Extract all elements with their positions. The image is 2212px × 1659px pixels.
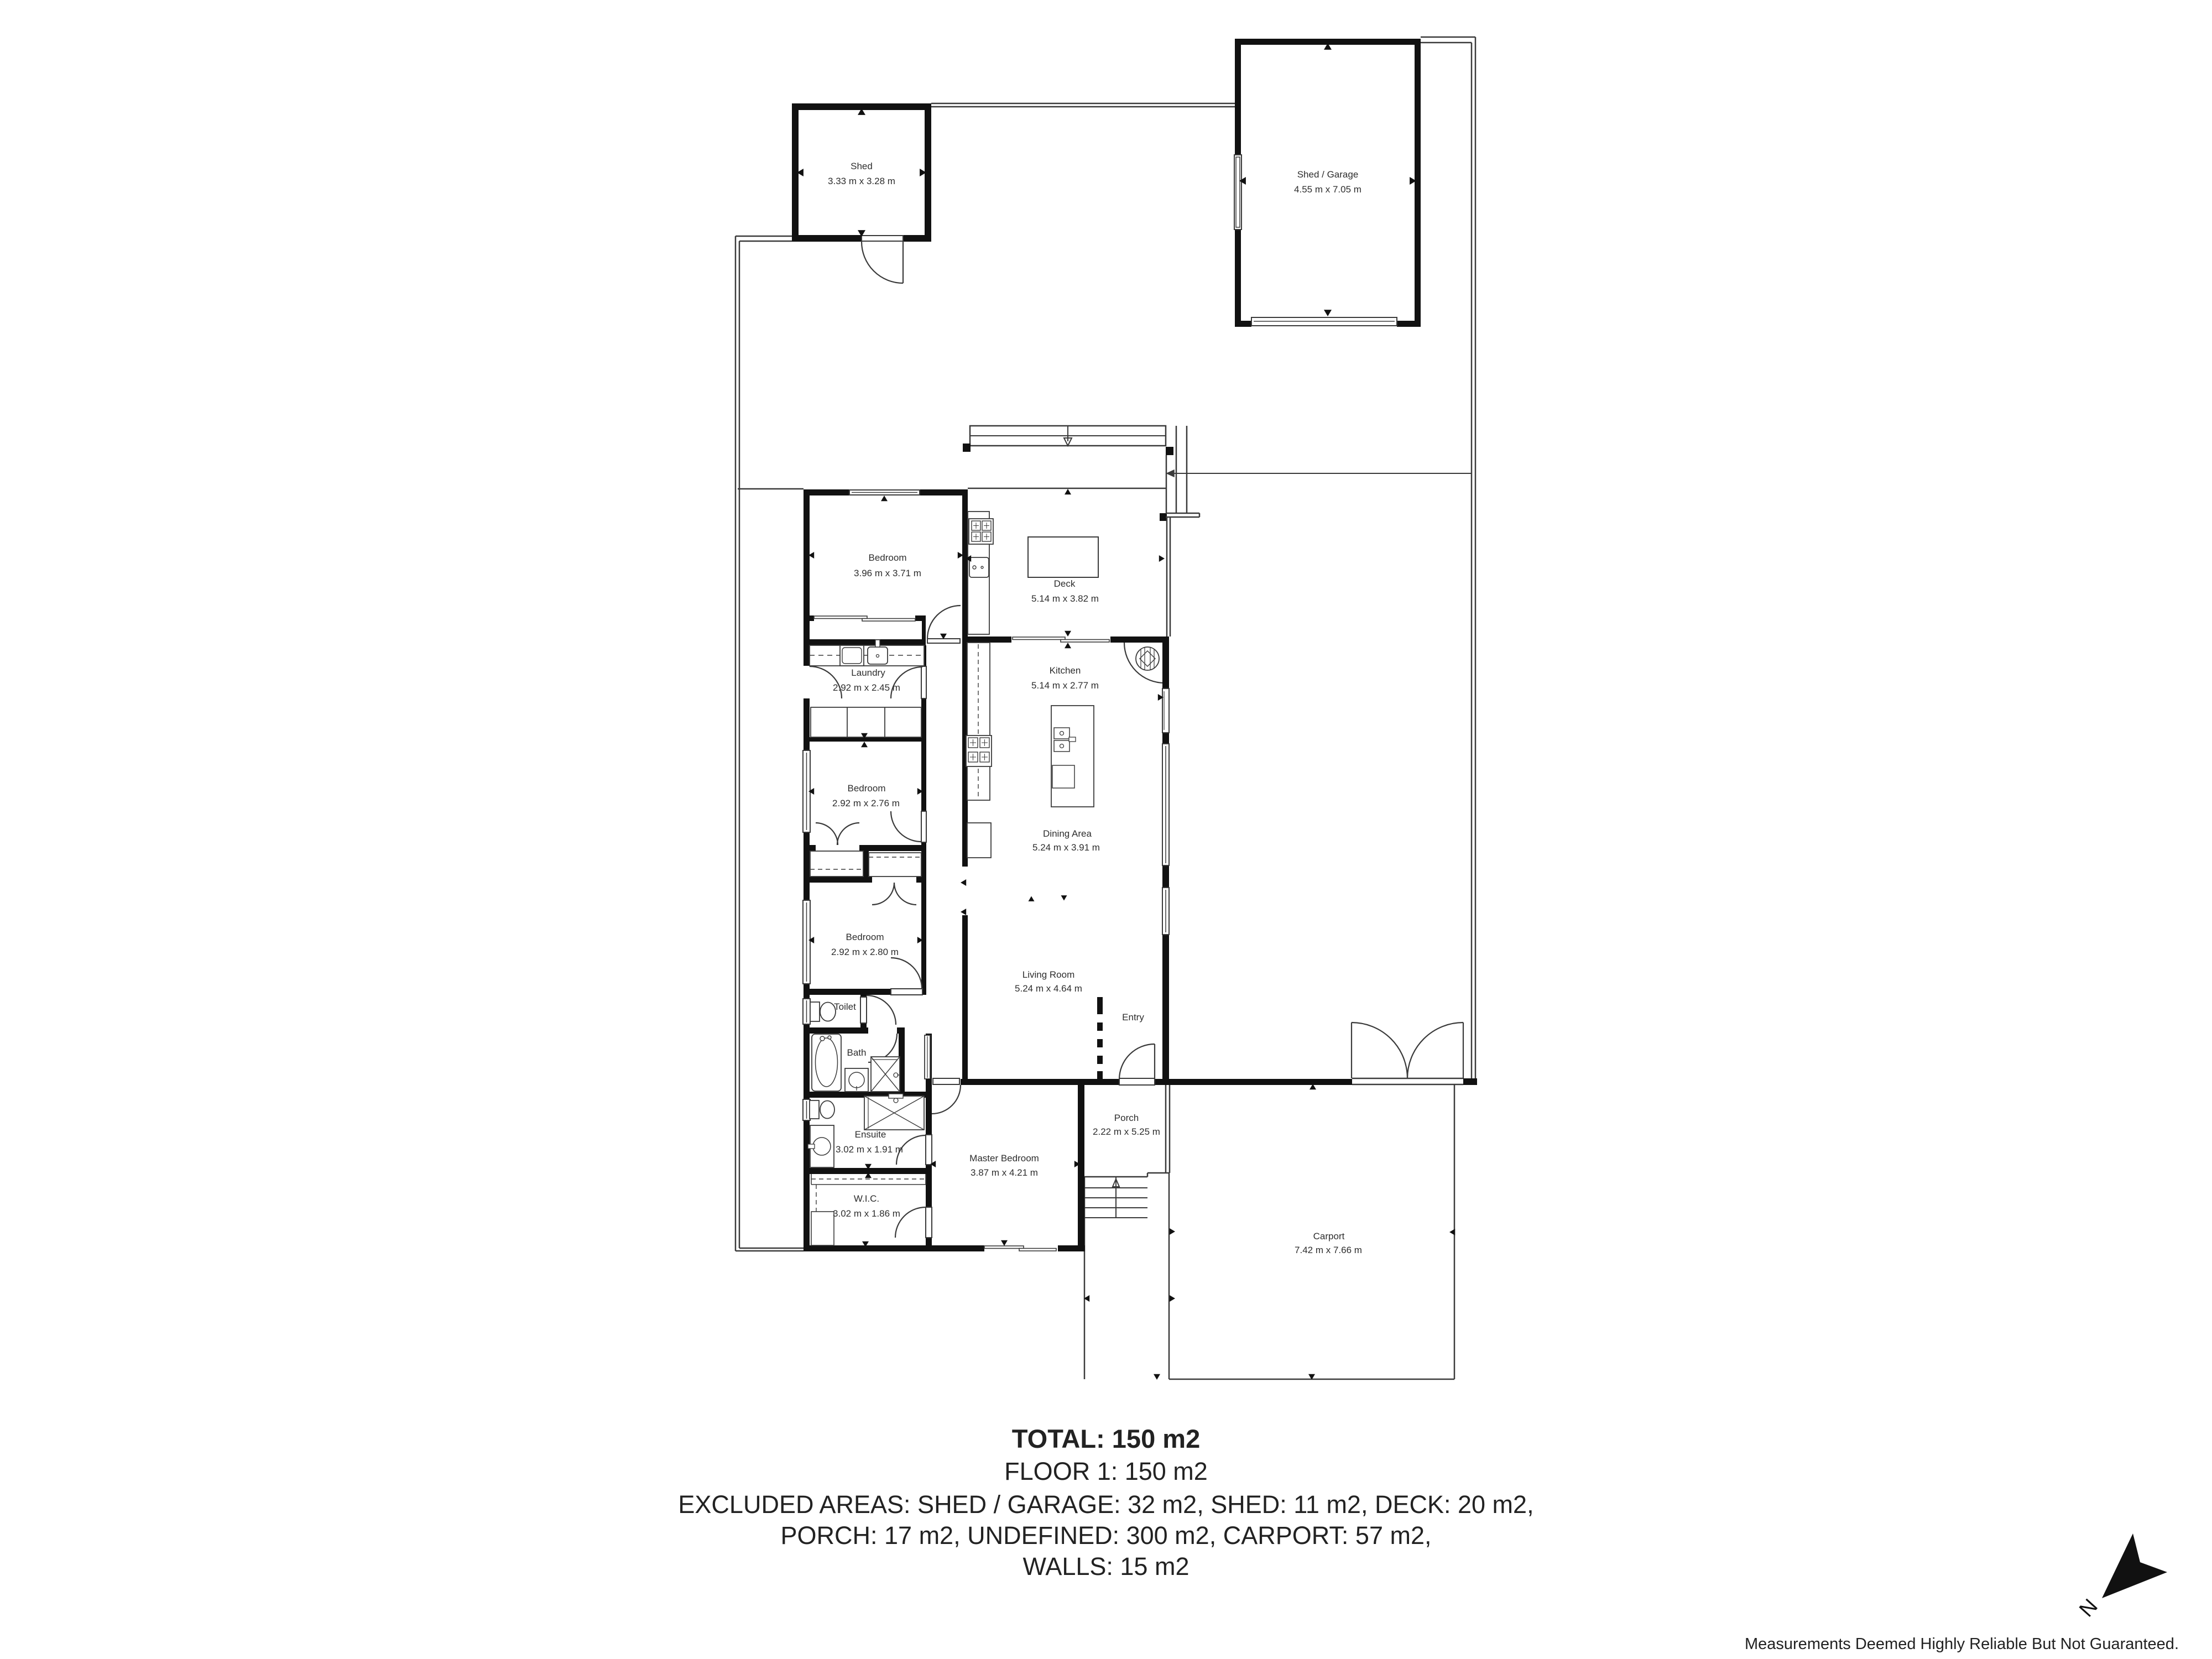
svg-text:Deck: Deck [1054,578,1076,589]
svg-text:Ensuite: Ensuite [855,1129,886,1140]
svg-text:Laundry: Laundry [851,667,885,678]
svg-text:3.96 m x 3.71 m: 3.96 m x 3.71 m [854,568,921,578]
svg-text:Bedroom: Bedroom [869,552,907,563]
svg-text:Kitchen: Kitchen [1050,665,1081,676]
svg-text:2.92 m x 2.45 m: 2.92 m x 2.45 m [833,682,900,693]
svg-text:Porch: Porch [1114,1113,1139,1123]
svg-text:EXCLUDED AREAS: SHED / GARAGE:: EXCLUDED AREAS: SHED / GARAGE: 32 m2, SH… [678,1490,1533,1519]
svg-text:5.14 m x 2.77 m: 5.14 m x 2.77 m [1031,680,1099,691]
svg-text:Toilet: Toilet [834,1001,856,1012]
svg-text:5.14 m x 3.82 m: 5.14 m x 3.82 m [1031,593,1099,604]
svg-text:2.22 m x 5.25 m: 2.22 m x 5.25 m [1093,1126,1160,1137]
svg-text:Bedroom: Bedroom [848,783,886,794]
svg-text:Dining Area: Dining Area [1043,828,1092,839]
svg-text:3.02 m x 1.86 m: 3.02 m x 1.86 m [833,1208,900,1219]
svg-text:Shed: Shed [851,161,873,171]
svg-text:7.42 m x 7.66 m: 7.42 m x 7.66 m [1295,1245,1362,1255]
svg-text:2.92 m x 2.76 m: 2.92 m x 2.76 m [832,798,900,808]
svg-text:3.02 m x 1.91 m: 3.02 m x 1.91 m [836,1144,903,1155]
svg-text:3.87 m x 4.21 m: 3.87 m x 4.21 m [971,1167,1038,1178]
svg-text:W.I.C.: W.I.C. [854,1193,879,1204]
svg-text:PORCH: 17 m2, UNDEFINED: 300 m: PORCH: 17 m2, UNDEFINED: 300 m2, CARPORT… [781,1521,1432,1550]
svg-text:5.24 m x 3.91 m: 5.24 m x 3.91 m [1032,842,1100,853]
svg-text:TOTAL: 150 m2: TOTAL: 150 m2 [1012,1424,1200,1453]
svg-text:Living Room: Living Room [1022,969,1075,980]
svg-text:Shed / Garage: Shed / Garage [1297,169,1359,180]
svg-text:3.33 m x 3.28 m: 3.33 m x 3.28 m [828,176,895,186]
svg-text:Bedroom: Bedroom [846,932,884,942]
svg-text:2.92 m x 2.80 m: 2.92 m x 2.80 m [831,947,899,957]
svg-text:Measurements Deemed Highly Rel: Measurements Deemed Highly Reliable But … [1745,1635,2179,1653]
svg-text:Bath: Bath [847,1047,867,1058]
svg-text:5.24 m x 4.64 m: 5.24 m x 4.64 m [1015,983,1082,994]
svg-text:Entry: Entry [1122,1012,1144,1022]
svg-text:WALLS: 15 m2: WALLS: 15 m2 [1023,1552,1190,1580]
svg-text:FLOOR 1: 150 m2: FLOOR 1: 150 m2 [1004,1457,1208,1485]
svg-text:Master Bedroom: Master Bedroom [969,1153,1039,1164]
svg-text:4.55 m x 7.05 m: 4.55 m x 7.05 m [1294,184,1361,195]
svg-text:Carport: Carport [1313,1231,1345,1241]
